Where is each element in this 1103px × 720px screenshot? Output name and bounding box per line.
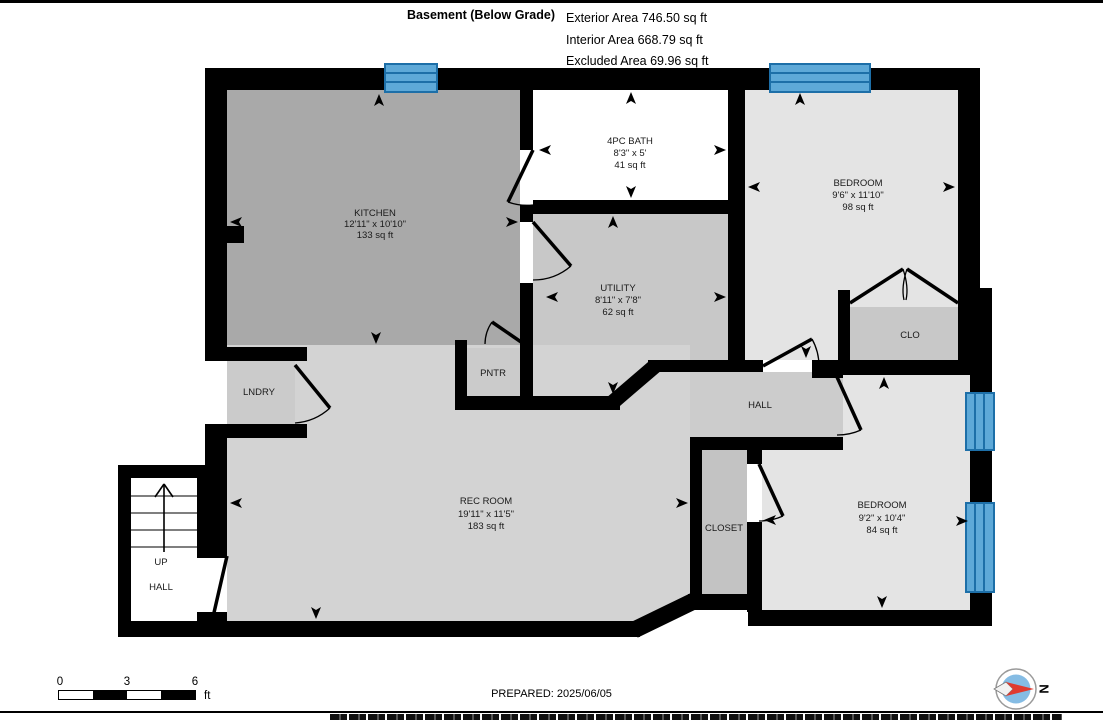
prepared-date: PREPARED: 2025/06/05 [0,688,1103,700]
utility-label: UTILITY [600,283,636,294]
closet-label: CLOSET [705,523,743,534]
rec-room-label: REC ROOM [460,496,512,507]
kitchen-label: KITCHEN [354,208,396,219]
kitchen-area: 133 sq ft [357,230,394,241]
bedroom-bottom-dims: 9'2" x 10'4" [859,513,906,524]
clo-label: CLO [900,330,920,341]
laundry-label: LNDRY [243,387,276,398]
bedroom-bottom-window-1 [966,393,994,450]
scale-tick-3: 3 [124,676,130,688]
bedroom-top-window [770,64,870,92]
rec-room-dims: 19'11" x 11'5" [458,509,514,520]
bedroom-bottom-label: BEDROOM [857,500,906,511]
rec-room-area: 183 sq ft [468,521,505,532]
utility-area: 62 sq ft [602,307,634,318]
kitchen-window [385,64,437,92]
stairs-up-label: UP [154,557,167,568]
bottom-border-line [0,711,1103,713]
kitchen-dims: 12'11" x 10'10" [344,219,406,230]
bedroom-bottom-area: 84 sq ft [866,525,898,536]
pantry-label: PNTR [480,368,506,379]
floor-plan-svg: KITCHEN 12'11" x 10'10" 133 sq ft 4PC BA… [0,0,1103,720]
bedroom-top-area: 98 sq ft [842,202,874,213]
bath-dims: 8'3" x 5' [614,148,647,159]
bath-label: 4PC BATH [607,136,653,147]
stairs-hall-label: HALL [149,582,173,593]
bedroom-top-dims: 9'6" x 11'10" [832,190,883,201]
compass-north-label: N [1037,684,1052,693]
utility-dims: 8'11" x 7'8" [595,295,641,306]
scale-tick-6: 6 [192,676,198,688]
stairs-door [213,556,227,618]
floor-plan-page: Basement (Below Grade) Exterior Area 746… [0,0,1103,720]
bedroom-top-label: BEDROOM [833,178,882,189]
clipped-watermark-text [330,714,1062,720]
bath-area: 41 sq ft [614,160,646,171]
hall-label: HALL [748,400,772,411]
compass-icon: N [986,664,1066,716]
bedroom-bottom-window-2 [966,503,994,592]
scale-tick-0: 0 [57,676,63,688]
